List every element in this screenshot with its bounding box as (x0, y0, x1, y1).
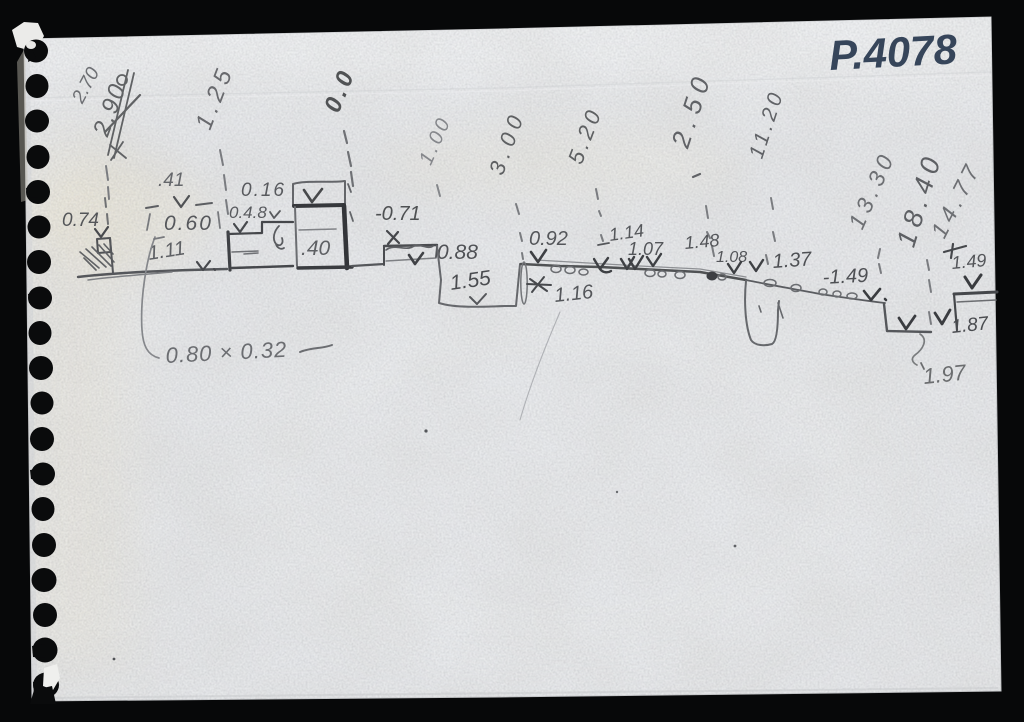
svg-text:0.16: 0.16 (241, 180, 286, 201)
svg-text:0.4.8: 0.4.8 (229, 203, 267, 222)
svg-text:0.60: 0.60 (164, 212, 213, 235)
svg-text:0.88: 0.88 (437, 241, 478, 264)
svg-text:1.08: 1.08 (716, 249, 747, 266)
svg-text:1.49: 1.49 (951, 250, 988, 273)
svg-text:.41: .41 (158, 170, 184, 191)
svg-text:P.4078: P.4078 (828, 25, 959, 79)
svg-text:0.92: 0.92 (529, 228, 568, 250)
svg-text:1.87: 1.87 (950, 313, 990, 338)
svg-text:1.48: 1.48 (684, 230, 721, 253)
svg-text:-0.71: -0.71 (375, 203, 421, 225)
svg-text:.40: .40 (301, 237, 331, 260)
svg-text:1.97: 1.97 (922, 360, 968, 389)
svg-text:0.74: 0.74 (62, 210, 99, 231)
svg-text:-1.49: -1.49 (822, 265, 869, 289)
svg-text:1.16: 1.16 (553, 281, 595, 307)
svg-text:1.37: 1.37 (772, 248, 813, 273)
svg-text:1.07: 1.07 (628, 239, 664, 259)
